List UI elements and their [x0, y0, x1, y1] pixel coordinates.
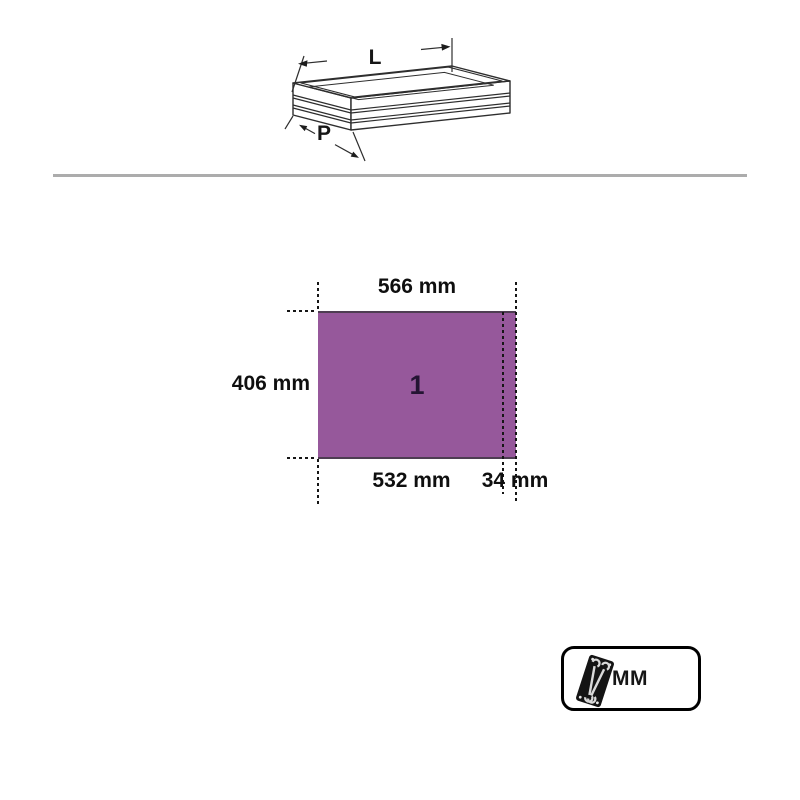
dimension-bottom-main-width: 532 mm — [320, 469, 503, 493]
drawer-illustration: L P — [280, 28, 520, 168]
unit-label: MM — [612, 649, 648, 708]
section-divider — [53, 174, 747, 177]
module-number: 1 — [409, 370, 424, 401]
drawer-figure: L P — [280, 28, 520, 168]
dimension-top-width: 566 mm — [318, 275, 516, 299]
p-arrow-up — [299, 125, 307, 131]
extension-line-edge-split — [502, 312, 504, 494]
l-arrow-right — [441, 44, 450, 51]
dimension-bottom-edge-width: 34 mm — [481, 469, 549, 493]
depth-dimension-label: P — [317, 122, 331, 145]
module-rect: 1 — [318, 311, 516, 459]
extension-line-bottom-left — [287, 457, 317, 459]
length-dimension-label: L — [369, 46, 382, 69]
unit-badge: MM — [561, 646, 701, 711]
extension-line-left-bottom — [317, 459, 319, 504]
dimension-left-height: 406 mm — [203, 372, 310, 396]
p-extension-left — [285, 116, 293, 129]
p-arrow-down — [351, 152, 359, 158]
extension-line-top-left — [287, 310, 317, 312]
